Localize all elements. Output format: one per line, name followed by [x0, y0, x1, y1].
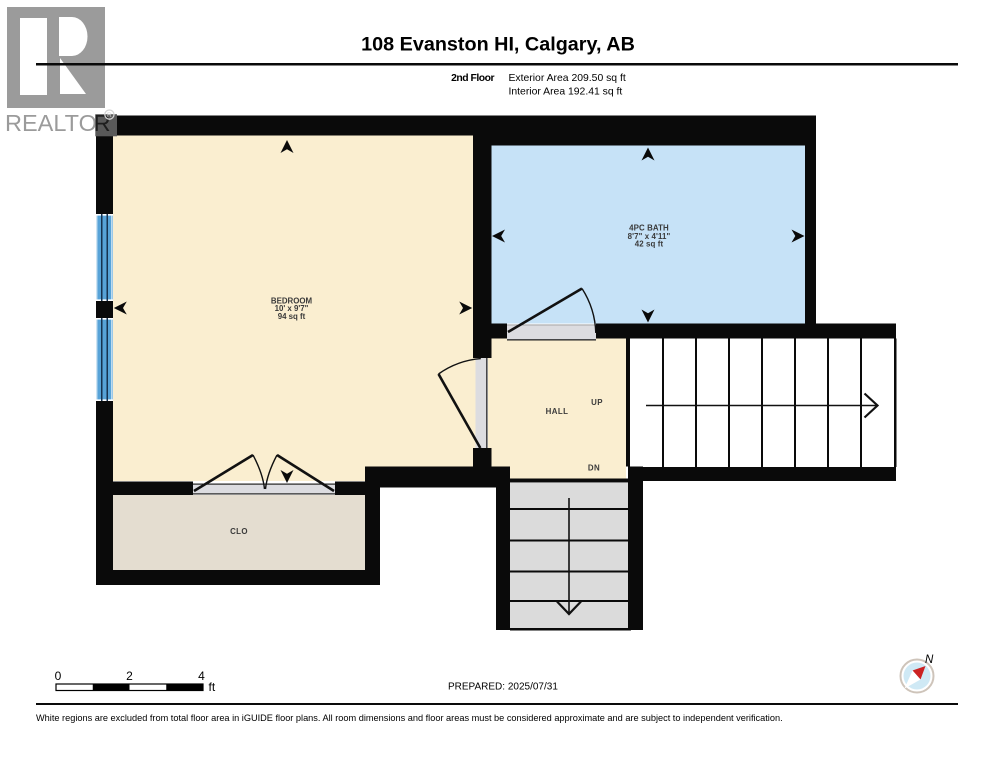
svg-text:Interior Area 192.41 sq ft: Interior Area 192.41 sq ft	[509, 87, 623, 98]
svg-text:Exterior Area 209.50 sq ft: Exterior Area 209.50 sq ft	[509, 73, 626, 84]
svg-text:N: N	[925, 654, 934, 666]
svg-text:108 Evanston HI, Calgary, AB: 108 Evanston HI, Calgary, AB	[361, 34, 635, 56]
svg-text:UP: UP	[591, 398, 603, 407]
svg-text:42 sq ft: 42 sq ft	[635, 240, 664, 249]
svg-text:CLO: CLO	[230, 527, 248, 536]
svg-text:2nd Floor: 2nd Floor	[451, 73, 494, 84]
svg-text:4: 4	[198, 669, 205, 683]
svg-text:PREPARED: 2025/07/31: PREPARED: 2025/07/31	[448, 682, 558, 693]
svg-text:94 sq ft: 94 sq ft	[278, 312, 306, 321]
svg-text:HALL: HALL	[546, 407, 569, 416]
svg-text:DN: DN	[588, 464, 600, 473]
svg-text:White regions are excluded fro: White regions are excluded from total fl…	[36, 713, 783, 723]
svg-text:2: 2	[126, 669, 133, 683]
svg-text:ft: ft	[209, 680, 216, 694]
svg-text:REALTO: REALTO	[5, 110, 97, 136]
svg-text:R: R	[107, 112, 112, 119]
svg-text:0: 0	[55, 669, 62, 683]
